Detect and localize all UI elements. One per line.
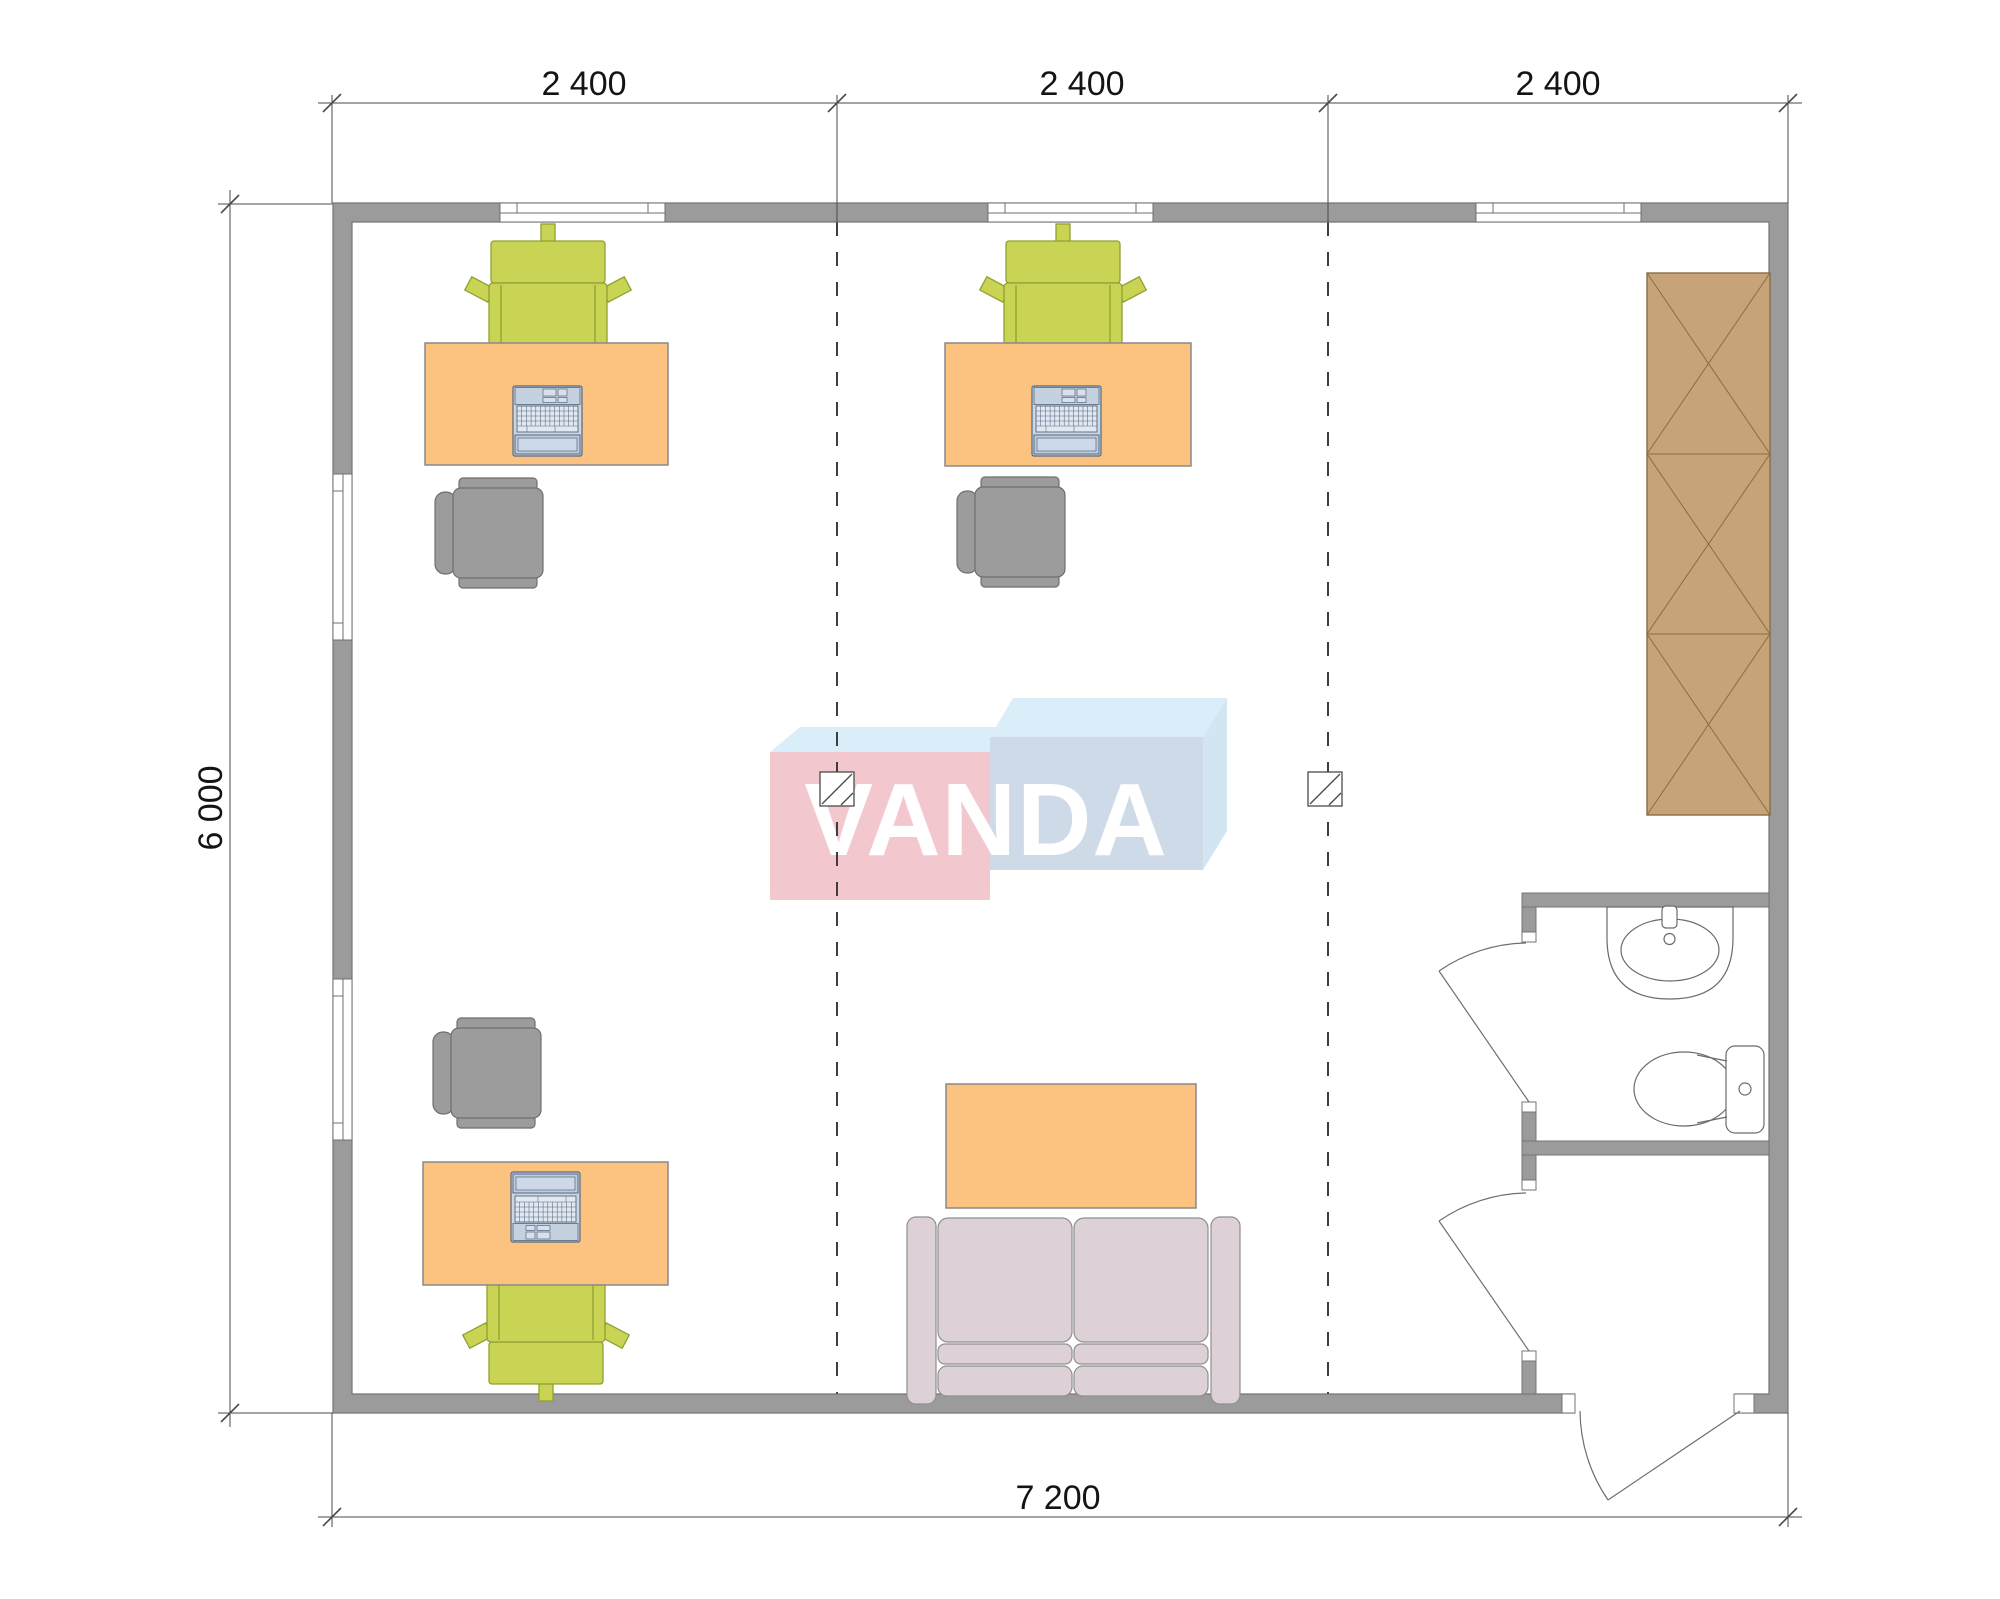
dim-label-bay-2: 2 400 [1039, 65, 1124, 103]
wc-divider-wall [1522, 1141, 1769, 1155]
door-jamb [1562, 1394, 1575, 1413]
laptop-icon [1032, 386, 1101, 456]
watermark-text: VANDA [804, 762, 1168, 877]
toilet-icon [1634, 1046, 1764, 1133]
logo-box-right-top-face [990, 698, 1227, 737]
visitor-chair-icon [435, 478, 543, 588]
sofa-armrest [907, 1217, 936, 1404]
dim-label-width: 7 200 [1015, 1479, 1100, 1517]
column-marker-icon [820, 772, 854, 806]
sofa-cushion [1074, 1218, 1208, 1342]
dim-label-bay-3: 2 400 [1515, 65, 1600, 103]
window-left-2 [333, 979, 352, 1140]
vestibule-door-swing [1439, 1193, 1529, 1351]
window-top-1 [500, 203, 665, 222]
logo-box-left-top-face [770, 727, 1020, 752]
laptop-icon [513, 386, 582, 456]
dimension-left [218, 190, 333, 1427]
task-chair-icon [980, 224, 1146, 345]
door-jamb [1734, 1394, 1754, 1413]
window-top-2 [988, 203, 1153, 222]
sofa-cushion [938, 1218, 1072, 1342]
column-marker-icon [1308, 772, 1342, 806]
sink-icon [1607, 906, 1733, 999]
sofa [907, 1217, 1240, 1404]
wc-top-wall [1522, 893, 1769, 907]
task-chair-icon [463, 1280, 629, 1401]
window-left-1 [333, 474, 352, 640]
visitor-chair-icon [957, 477, 1065, 587]
floor-plan-canvas: VANDA [0, 0, 2000, 1599]
dim-label-bay-1: 2 400 [541, 65, 626, 103]
dim-label-depth: 6 000 [192, 765, 230, 850]
entrance-door-swing [1580, 1411, 1740, 1500]
sofa-armrest [1211, 1217, 1240, 1404]
wc-door-swing [1439, 943, 1529, 1102]
wardrobe [1647, 273, 1770, 815]
coffee-table [946, 1084, 1196, 1208]
task-chair-icon [465, 224, 631, 345]
entrance-opening [1562, 1393, 1754, 1414]
visitor-chair-icon [433, 1018, 541, 1128]
laptop-icon [511, 1172, 580, 1242]
window-top-3 [1476, 203, 1641, 222]
floor-plan-drawing: VANDA [0, 0, 2000, 1599]
doors [1439, 943, 1740, 1500]
